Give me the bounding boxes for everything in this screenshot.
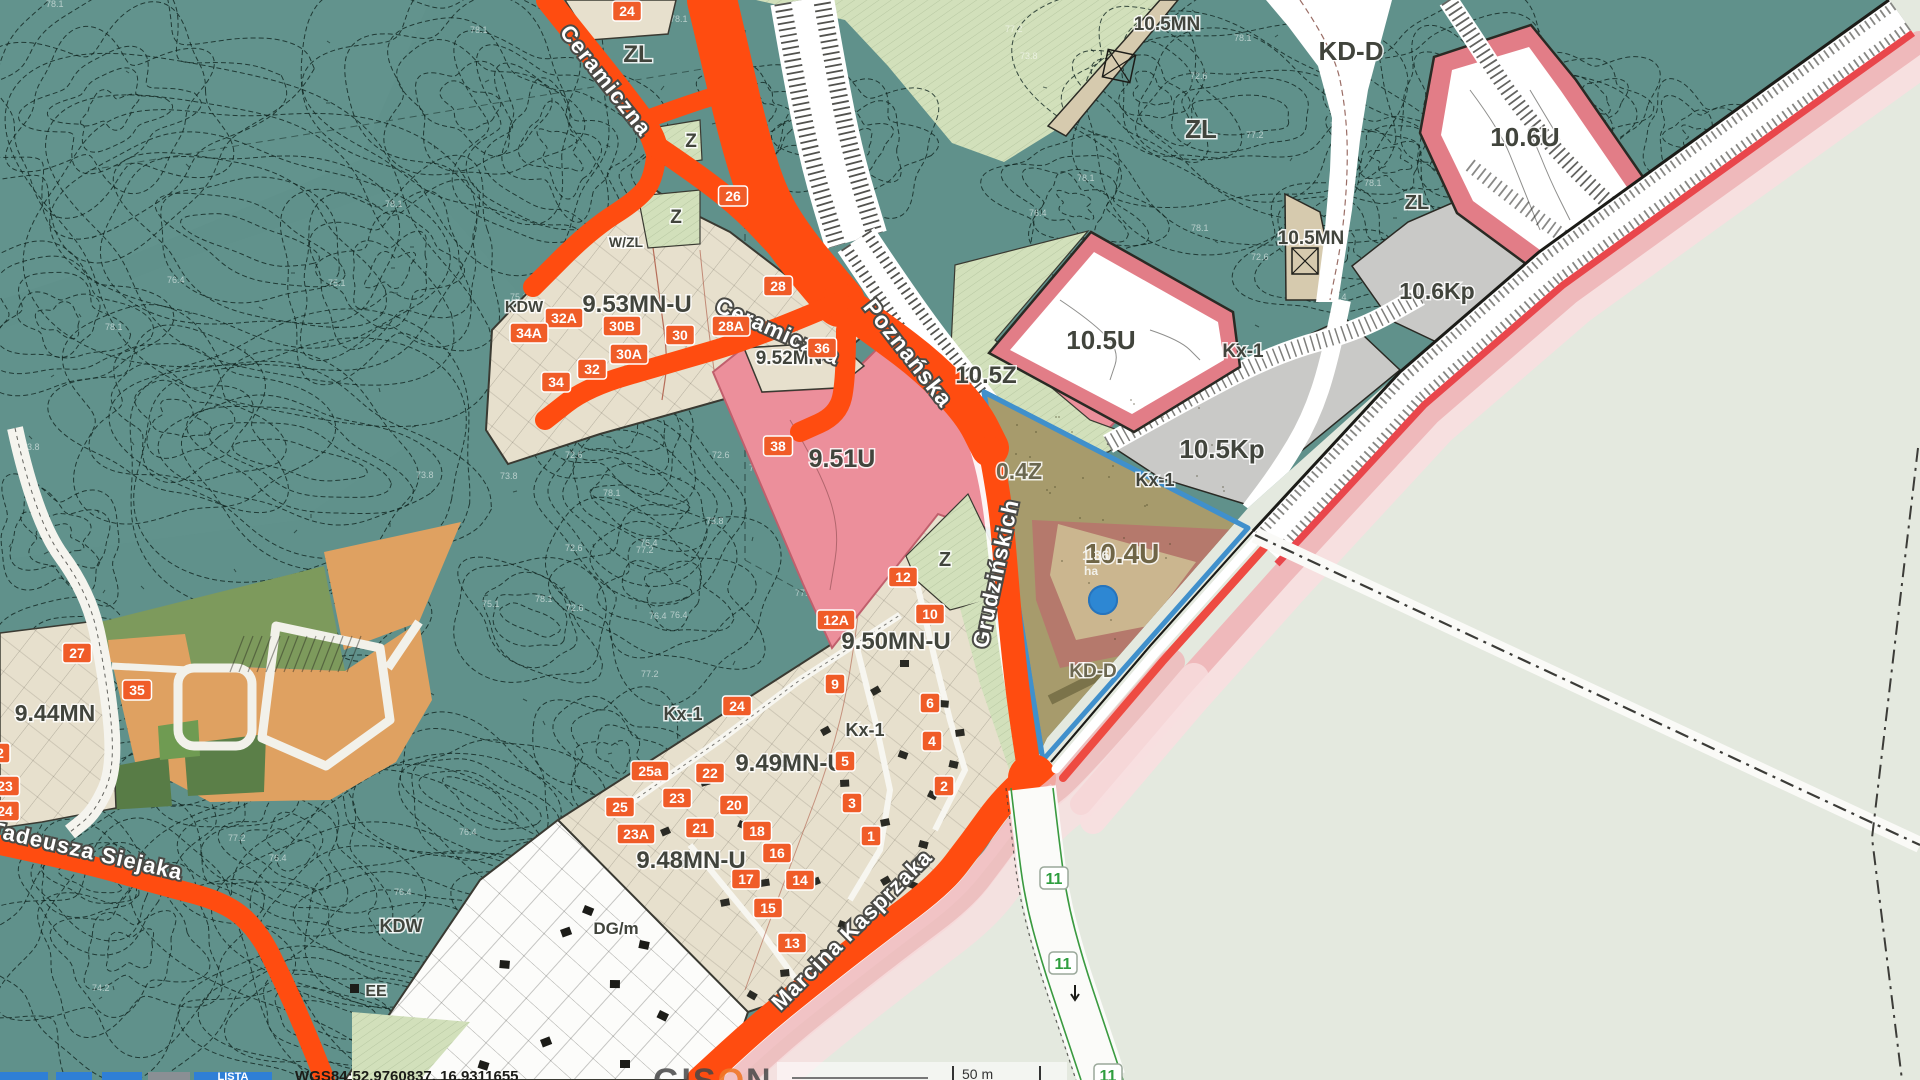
svg-text:11: 11 <box>1055 956 1072 973</box>
svg-text:ZL: ZL <box>1185 114 1217 144</box>
svg-text:77.2: 77.2 <box>228 833 246 843</box>
svg-text:73.8: 73.8 <box>706 516 724 526</box>
svg-text:4: 4 <box>928 733 936 749</box>
svg-text:9.44MN: 9.44MN <box>15 700 96 726</box>
svg-text:GISON: GISON <box>653 1062 773 1080</box>
svg-text:77.2: 77.2 <box>1005 24 1023 34</box>
svg-text:72.6: 72.6 <box>1251 252 1269 262</box>
svg-text:9.53MN-U: 9.53MN-U <box>582 291 691 318</box>
svg-text:14: 14 <box>792 872 808 888</box>
svg-text:12: 12 <box>895 569 911 585</box>
svg-text:Z: Z <box>670 207 682 228</box>
svg-text:76.4: 76.4 <box>269 853 287 863</box>
svg-text:Kx-1: Kx-1 <box>1222 341 1264 362</box>
svg-text:78.1: 78.1 <box>385 199 403 209</box>
svg-text:73.8: 73.8 <box>500 471 518 481</box>
svg-text:78.1: 78.1 <box>603 488 621 498</box>
svg-text:Z: Z <box>939 549 951 571</box>
svg-text:13: 13 <box>784 935 800 951</box>
svg-text:78.1: 78.1 <box>1234 33 1252 43</box>
svg-text:KDW: KDW <box>505 299 544 316</box>
svg-text:36: 36 <box>814 340 830 356</box>
svg-text:30: 30 <box>672 327 688 343</box>
svg-text:76.4: 76.4 <box>459 827 477 837</box>
svg-text:9: 9 <box>831 676 839 692</box>
svg-text:10.5U: 10.5U <box>1066 325 1135 355</box>
svg-text:72.6: 72.6 <box>565 450 583 460</box>
svg-text:Kx-1: Kx-1 <box>1135 470 1174 490</box>
svg-text:78.1: 78.1 <box>46 0 64 9</box>
svg-text:78.1: 78.1 <box>105 322 123 332</box>
svg-text:20: 20 <box>726 797 742 813</box>
svg-text:76.4: 76.4 <box>1029 208 1047 218</box>
svg-text:25: 25 <box>612 799 628 815</box>
svg-text:0.4Z: 0.4Z <box>996 458 1042 484</box>
svg-text:24: 24 <box>619 3 635 19</box>
svg-text:10: 10 <box>922 606 938 622</box>
svg-text:17: 17 <box>738 871 754 887</box>
svg-text:5: 5 <box>841 753 849 769</box>
svg-text:28: 28 <box>770 278 786 294</box>
svg-text:10.5Z: 10.5Z <box>955 362 1016 389</box>
svg-text:10.5MN: 10.5MN <box>1278 228 1345 249</box>
svg-text:ZL: ZL <box>623 41 652 68</box>
svg-text:12A: 12A <box>823 612 849 628</box>
svg-text:10.5MN: 10.5MN <box>1134 14 1201 35</box>
svg-text:77.2: 77.2 <box>1246 130 1264 140</box>
svg-text:76.4: 76.4 <box>394 887 412 897</box>
svg-text:11: 11 <box>1046 871 1063 888</box>
svg-text:10.6Kp: 10.6Kp <box>1399 278 1474 304</box>
svg-text:34: 34 <box>548 374 564 390</box>
svg-text:72.6: 72.6 <box>712 450 730 460</box>
svg-text:76.4: 76.4 <box>670 610 688 620</box>
svg-text:78.1: 78.1 <box>1364 178 1382 188</box>
svg-text:ZL: ZL <box>1405 192 1429 214</box>
svg-text:38: 38 <box>770 438 786 454</box>
svg-text:LISTA: LISTA <box>218 1071 249 1080</box>
svg-text:2: 2 <box>940 778 948 794</box>
svg-text:KD-D: KD-D <box>1319 36 1384 66</box>
svg-text:74.2: 74.2 <box>92 983 110 993</box>
svg-text:10.5Kp: 10.5Kp <box>1179 434 1264 464</box>
svg-text:75.1: 75.1 <box>482 599 500 609</box>
svg-text:35: 35 <box>129 682 145 698</box>
svg-text:2: 2 <box>0 745 4 761</box>
svg-text:Kx-1: Kx-1 <box>845 720 884 740</box>
svg-text:50 m: 50 m <box>962 1066 993 1080</box>
svg-text:18: 18 <box>749 823 765 839</box>
svg-text:78.1: 78.1 <box>1077 173 1095 183</box>
svg-text:76.4: 76.4 <box>649 611 667 621</box>
svg-text:9.51U: 9.51U <box>809 445 876 473</box>
svg-text:78.1: 78.1 <box>470 25 488 35</box>
svg-text:32: 32 <box>584 361 600 377</box>
svg-text:KDW: KDW <box>380 916 423 936</box>
svg-text:73.8: 73.8 <box>416 470 434 480</box>
svg-text:24: 24 <box>729 698 745 714</box>
svg-text:78.1: 78.1 <box>1191 223 1209 233</box>
svg-text:W/ZL: W/ZL <box>609 234 644 250</box>
svg-text:1.36: 1.36 <box>1082 547 1109 563</box>
svg-text:28A: 28A <box>718 318 744 334</box>
svg-text:22: 22 <box>702 765 718 781</box>
svg-text:Kx-1: Kx-1 <box>663 704 702 724</box>
svg-text:25a: 25a <box>638 763 662 779</box>
svg-text:23: 23 <box>669 790 685 806</box>
svg-text:9.50MN-U: 9.50MN-U <box>841 628 950 655</box>
svg-text:DG/m: DG/m <box>593 919 638 938</box>
svg-text:Z: Z <box>685 131 697 152</box>
svg-text:30A: 30A <box>616 346 642 362</box>
svg-text:30B: 30B <box>609 318 635 334</box>
svg-text:6: 6 <box>926 695 934 711</box>
svg-text:EE: EE <box>365 983 387 1000</box>
svg-text:26: 26 <box>725 188 741 204</box>
svg-text:34A: 34A <box>516 325 542 341</box>
svg-text:WGS84:52.9760837, 16.9311655: WGS84:52.9760837, 16.9311655 <box>295 1068 519 1080</box>
svg-text:1: 1 <box>867 828 875 844</box>
svg-text:9.48MN-U: 9.48MN-U <box>636 847 745 874</box>
svg-text:72.6: 72.6 <box>566 603 584 613</box>
svg-text:ha: ha <box>1084 564 1098 578</box>
svg-text:3: 3 <box>848 795 856 811</box>
svg-text:24: 24 <box>0 803 13 819</box>
svg-text:76.4: 76.4 <box>167 275 185 285</box>
svg-text:16: 16 <box>769 845 785 861</box>
svg-text:72.6: 72.6 <box>1190 71 1208 81</box>
svg-text:10.6U: 10.6U <box>1490 122 1559 152</box>
svg-text:21: 21 <box>692 820 708 836</box>
svg-text:11: 11 <box>1100 1068 1117 1080</box>
svg-text:72.6: 72.6 <box>565 543 583 553</box>
svg-text:75.1: 75.1 <box>328 278 346 288</box>
svg-text:23A: 23A <box>623 826 649 842</box>
svg-text:77.2: 77.2 <box>641 669 659 679</box>
svg-text:76.4: 76.4 <box>640 538 658 548</box>
svg-text:15: 15 <box>760 900 776 916</box>
svg-text:KD-D: KD-D <box>1069 661 1117 682</box>
svg-text:9.49MN-U: 9.49MN-U <box>735 750 844 777</box>
svg-text:23: 23 <box>0 778 13 794</box>
svg-text:32A: 32A <box>551 310 577 326</box>
svg-text:78.1: 78.1 <box>535 594 553 604</box>
svg-text:27: 27 <box>69 645 85 661</box>
svg-text:73.8: 73.8 <box>1020 51 1038 61</box>
